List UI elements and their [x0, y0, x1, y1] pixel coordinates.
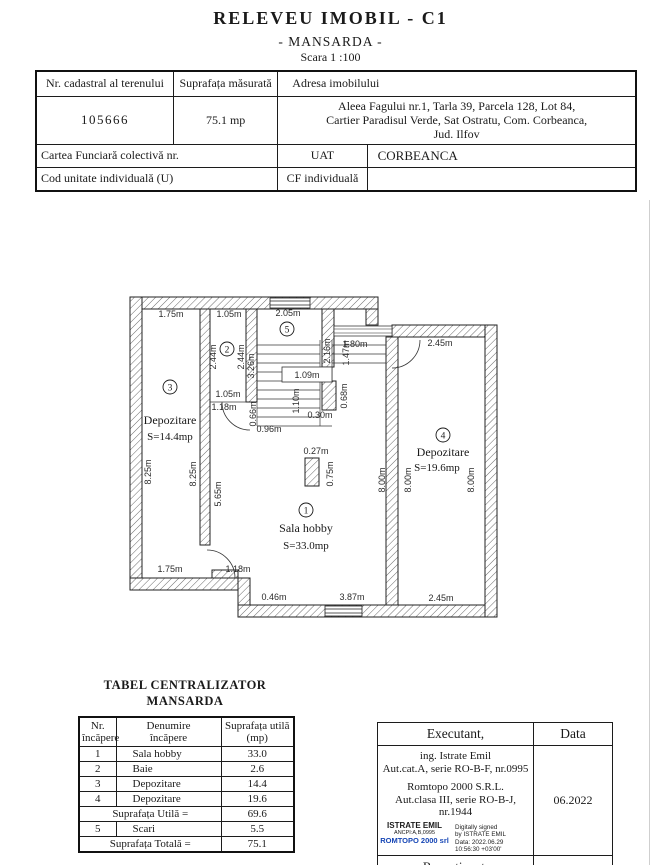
dim-chimney-height: 0.75m	[325, 461, 335, 486]
dim-dep4-height-right: 8.00m	[466, 467, 476, 492]
useful-area-value: 69.6	[221, 807, 294, 822]
dim-dep4-height-left1: 8.00m	[377, 467, 387, 492]
dim-dep4-bottom: 2.45m	[428, 593, 453, 603]
dim-dep4-height-left2: 8.00m	[403, 467, 413, 492]
useful-area-label: Suprafața Utilă =	[79, 807, 221, 822]
document-page: RELEVEU IMOBIL - C1 - MANSARDA - Scara 1…	[0, 0, 661, 865]
dim-hobby-height-left: 5.65m	[213, 481, 223, 506]
dim-bath-height-left: 2.44m	[208, 344, 218, 369]
table-row: 3 Depozitare 14.4	[79, 777, 294, 792]
dim-stair-flight-left: 3.26m	[246, 353, 256, 378]
summary-col-nr: Nr. încăpere	[79, 717, 116, 747]
company-name: Romtopo 2000 S.R.L.	[379, 781, 532, 794]
useful-area-row: Suprafața Utilă = 69.6	[79, 807, 294, 822]
summary-col-suprafata: Suprafața utilă (mp)	[221, 717, 294, 747]
dim-chimney-width: 0.27m	[303, 446, 328, 456]
room-area-hobby: S=33.0mp	[283, 540, 329, 552]
executant-table: Executant, Data ing. Istrate Emil Aut.ca…	[377, 722, 613, 865]
total-area-row: Suprafața Totală = 75.1	[79, 837, 294, 853]
table-row: 2 Baie 2.6	[79, 762, 294, 777]
dim-stair-flight-right: 2.16m	[322, 338, 332, 363]
dim-bottom-left: 1.75m	[157, 564, 182, 574]
dim-dep3-height-outer: 8.25m	[143, 459, 153, 484]
dim-dep4-top: 2.45m	[427, 338, 452, 348]
summary-col-denumire: Denumire încăpere	[116, 717, 221, 747]
receptionat-empty	[534, 856, 613, 865]
engineer-authorization: Aut.cat.A, serie RO-B-F, nr.0995	[379, 763, 532, 776]
dim-stair-mid: 1.09m	[294, 370, 319, 380]
total-area-value: 75.1	[221, 837, 294, 853]
dim-hobby-door: 1.18m	[225, 564, 250, 574]
room-area-dep3: S=14.4mp	[147, 431, 193, 443]
summary-title-line1: TABEL CENTRALIZATOR	[80, 678, 290, 693]
dim-post-width: 0.30m	[307, 410, 332, 420]
table-row: 1 Sala hobby 33.0	[79, 747, 294, 762]
dim-stair-bottom: 0.96m	[256, 424, 281, 434]
room-number-dep3: 3	[168, 384, 173, 394]
dim-stair-width: 2.05m	[275, 308, 300, 318]
room-label-hobby: Sala hobby	[279, 521, 333, 535]
dim-bath-jamb: 0.66m	[248, 401, 258, 426]
interior-walls	[200, 309, 398, 605]
window-bottom	[325, 606, 362, 616]
room-label-dep4: Depozitare	[417, 445, 470, 459]
dim-stair-lower-width: 1.10m	[291, 388, 301, 413]
dim-post-height: 0.68m	[339, 383, 349, 408]
room-number-bath: 2	[225, 346, 230, 356]
stamp-name: ISTRATE EMIL	[379, 822, 450, 831]
table-row: 4 Depozitare 19.6	[79, 792, 294, 807]
dim-bath-bottom: 1.05m	[215, 389, 240, 399]
total-area-label: Suprafața Totală =	[79, 837, 221, 853]
dim-top-left: 1.75m	[158, 309, 183, 319]
dim-bath-height-right: 2.44m	[236, 344, 246, 369]
date-value: 06.2022	[534, 746, 613, 856]
summary-title-line2: MANSARDA	[80, 694, 290, 709]
scan-page-edge	[649, 200, 650, 865]
room-area-dep4: S=19.6mp	[414, 462, 460, 474]
chimney	[305, 458, 319, 486]
dim-hobby-bottom: 3.87m	[339, 592, 364, 602]
stamp-company: ROMTOPO 2000 srl	[379, 837, 450, 845]
stair-mid-dim-box: 1.09m	[282, 367, 332, 382]
engineer-name: ing. Istrate Emil	[379, 750, 532, 763]
dim-bath-top: 1.05m	[216, 309, 241, 319]
company-authorization: Aut.clasa III, serie RO-B-J, nr.1944	[379, 794, 532, 819]
signature-details: Digitally signed by ISTRATE EMIL Data: 2…	[455, 822, 532, 854]
room-label-dep3: Depozitare	[144, 413, 197, 427]
room-number-hobby: 1	[304, 507, 309, 517]
dim-bottom-step: 0.46m	[261, 592, 286, 602]
dim-bath-door: 1.18m	[211, 402, 236, 412]
dim-stair-landing: 1.47m	[341, 340, 351, 365]
executant-details: ing. Istrate Emil Aut.cat.A, serie RO-B-…	[378, 746, 534, 856]
terrace-door-threshold	[334, 326, 392, 336]
executant-header: Executant,	[378, 723, 534, 746]
date-header: Data	[534, 723, 613, 746]
dim-dep3-height-inner: 8.25m	[188, 461, 198, 486]
window-top	[270, 298, 310, 308]
receptionat-label: Recepționat,	[378, 856, 534, 865]
summary-table: Nr. încăpere Denumire încăpere Suprafața…	[78, 716, 295, 853]
stairs-row: 5 Scari 5.5	[79, 822, 294, 837]
room-number-stairs: 5	[285, 326, 290, 336]
digital-signature-stamp: ISTRATE EMIL ANCPI:A,B,0995 ROMTOPO 2000…	[379, 822, 532, 854]
room-number-dep4: 4	[441, 432, 446, 442]
